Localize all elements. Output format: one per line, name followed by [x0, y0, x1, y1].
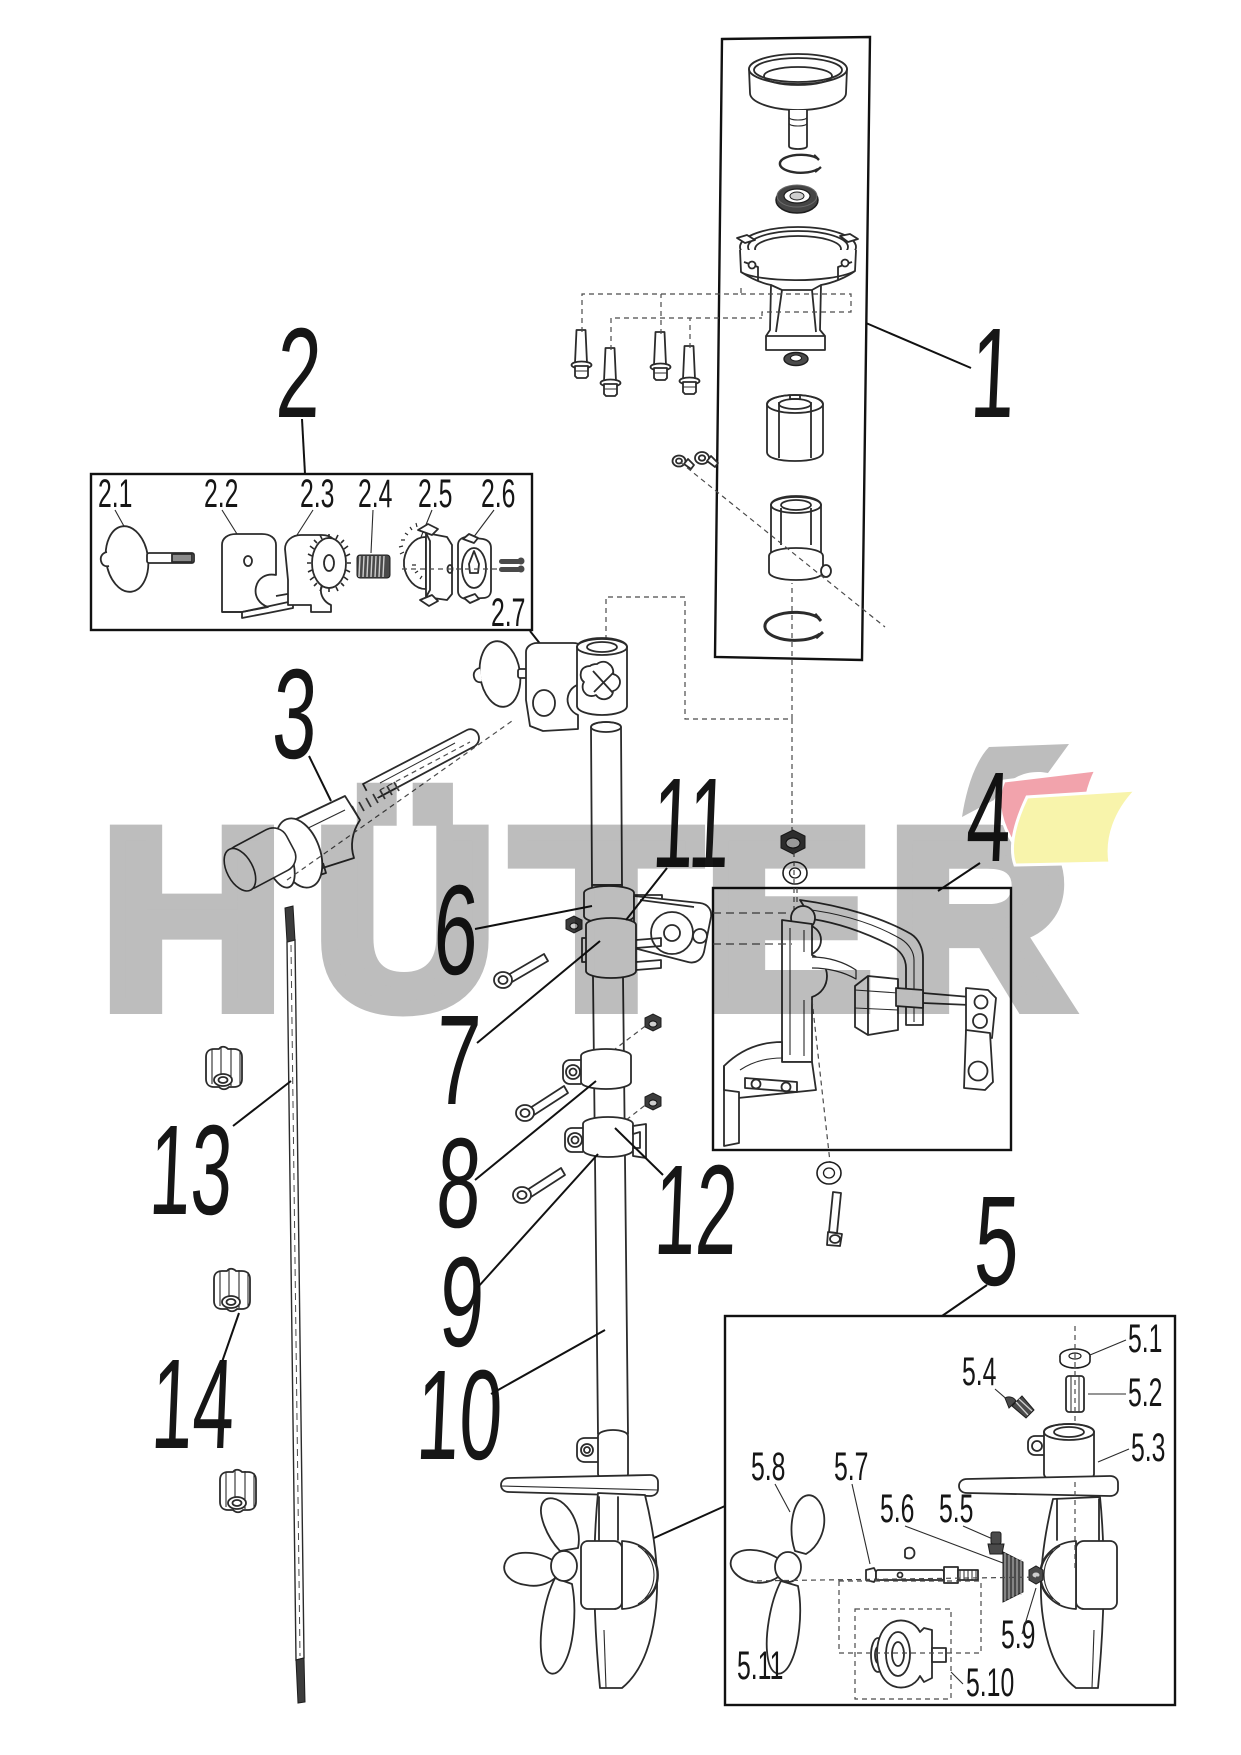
svg-text:H: H: [101, 779, 283, 1060]
svg-text:5.7: 5.7: [834, 1445, 868, 1489]
svg-text:E: E: [704, 779, 872, 1060]
svg-text:5.4: 5.4: [962, 1350, 996, 1394]
svg-text:2.3: 2.3: [300, 472, 334, 516]
svg-text:Ü: Ü: [314, 779, 496, 1060]
svg-text:5.8: 5.8: [751, 1445, 785, 1489]
svg-text:5.5: 5.5: [939, 1487, 973, 1531]
svg-text:5.2: 5.2: [1128, 1371, 1162, 1415]
svg-text:5.9: 5.9: [1001, 1613, 1035, 1657]
svg-text:10: 10: [414, 1344, 505, 1487]
svg-text:2: 2: [274, 302, 324, 445]
svg-text:5.3: 5.3: [1131, 1426, 1165, 1470]
svg-text:2.4: 2.4: [358, 472, 392, 516]
svg-text:12: 12: [652, 1139, 740, 1282]
svg-text:5.11: 5.11: [737, 1644, 783, 1688]
svg-text:2.7: 2.7: [491, 591, 525, 635]
svg-text:5.6: 5.6: [880, 1487, 914, 1531]
svg-text:T: T: [514, 778, 699, 1060]
svg-text:13: 13: [147, 1099, 235, 1242]
svg-text:2.2: 2.2: [204, 472, 238, 516]
svg-text:5.1: 5.1: [1128, 1317, 1162, 1361]
svg-text:2.5: 2.5: [418, 472, 452, 516]
svg-text:5.10: 5.10: [966, 1661, 1014, 1705]
svg-text:2.6: 2.6: [481, 472, 515, 516]
svg-text:1: 1: [968, 302, 1018, 445]
